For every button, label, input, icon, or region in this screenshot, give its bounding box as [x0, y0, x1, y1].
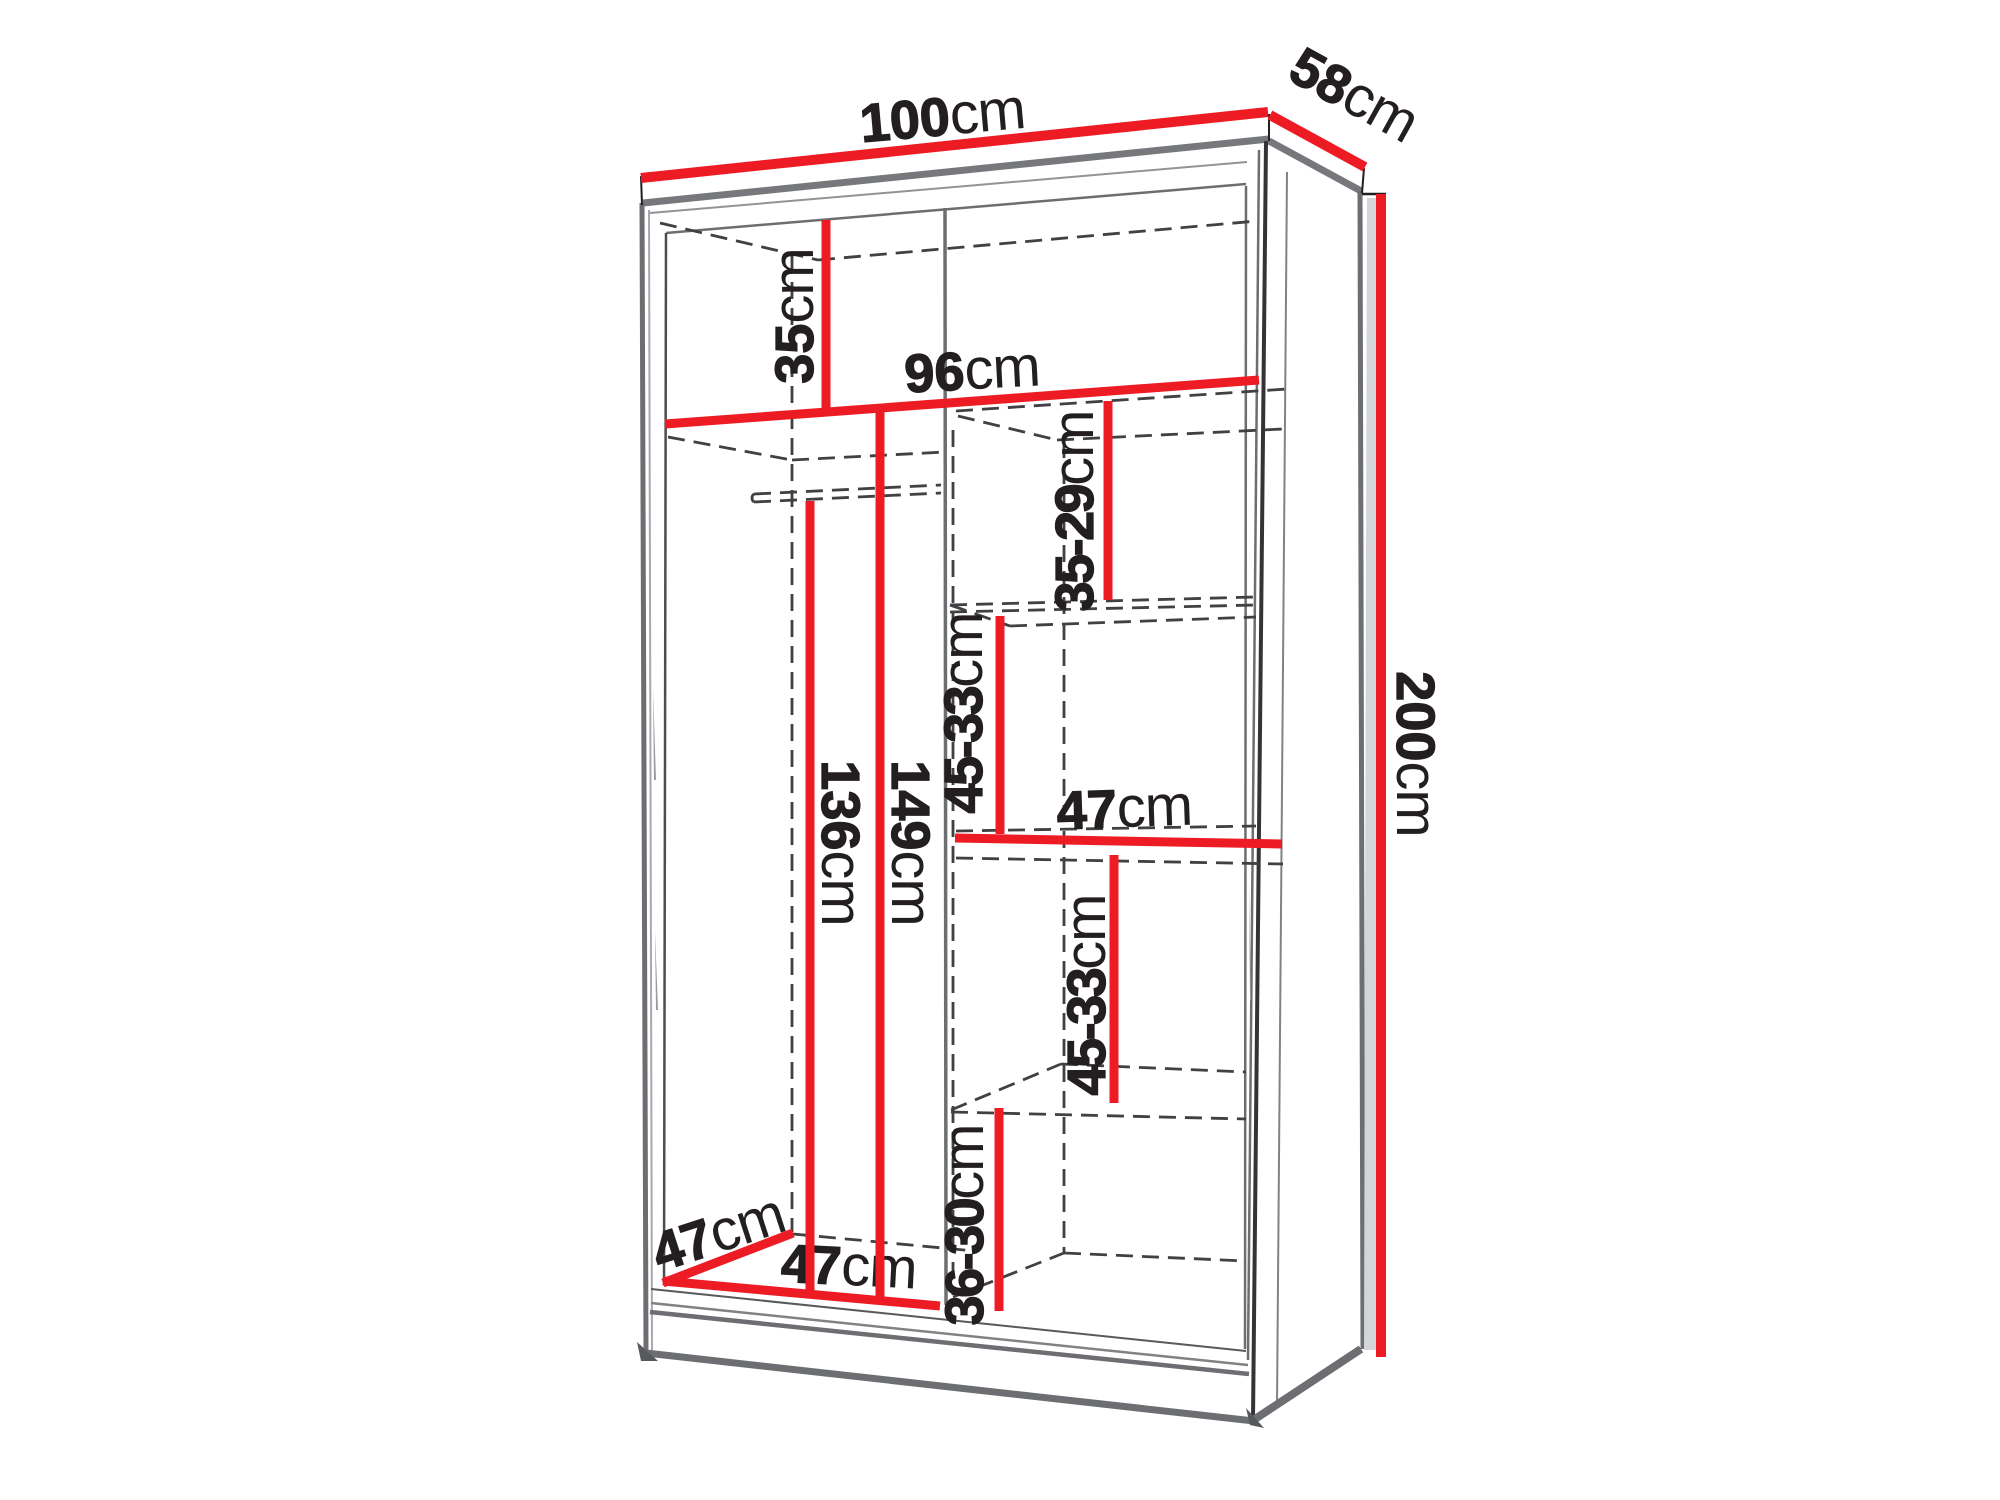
- svg-text:47cm: 47cm: [1056, 773, 1194, 843]
- svg-text:35-29cm: 35-29cm: [1041, 411, 1106, 612]
- svg-text:149cm: 149cm: [879, 760, 944, 925]
- svg-text:36-30cm: 36-30cm: [931, 1125, 996, 1326]
- svg-text:200cm: 200cm: [1384, 671, 1449, 836]
- svg-text:45-33cm: 45-33cm: [1053, 895, 1118, 1096]
- svg-text:47cm: 47cm: [644, 1181, 793, 1285]
- svg-text:136cm: 136cm: [809, 760, 874, 925]
- svg-text:35cm: 35cm: [761, 248, 826, 383]
